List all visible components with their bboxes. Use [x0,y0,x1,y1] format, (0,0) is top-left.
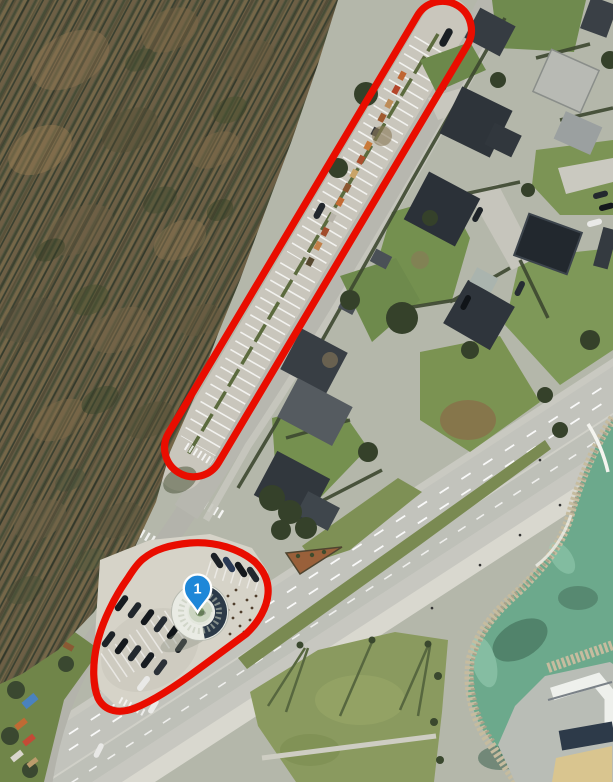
aerial-map-canvas[interactable]: 1 [0,0,613,782]
aerial-map-screenshot[interactable]: 1 [0,0,613,782]
marker-label: 1 [193,582,201,598]
